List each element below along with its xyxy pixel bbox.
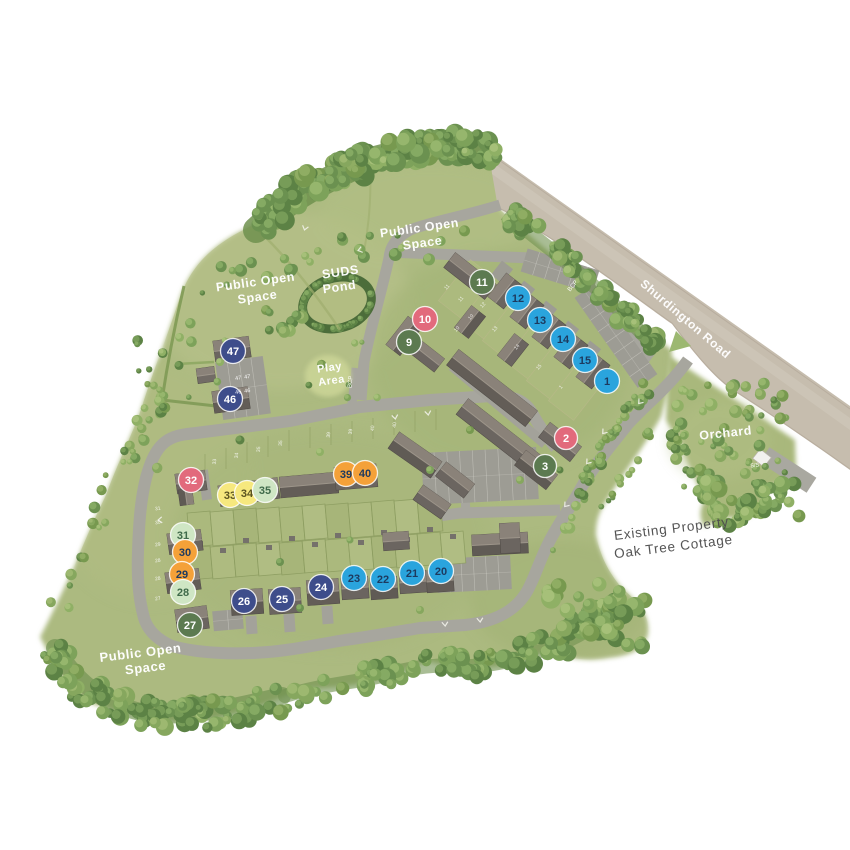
svg-text:20: 20: [435, 566, 447, 578]
svg-text:30: 30: [179, 547, 191, 559]
svg-text:35: 35: [256, 446, 262, 452]
svg-text:39: 39: [340, 469, 352, 481]
svg-text:34: 34: [234, 452, 240, 458]
svg-text:15: 15: [579, 355, 591, 367]
svg-text:2: 2: [563, 433, 569, 445]
svg-text:46: 46: [224, 394, 236, 406]
svg-text:32: 32: [185, 475, 197, 487]
svg-text:3: 3: [542, 461, 548, 473]
svg-text:S/S: S/S: [750, 462, 760, 469]
svg-text:39: 39: [348, 428, 354, 434]
svg-text:33: 33: [212, 458, 218, 464]
svg-text:29: 29: [155, 542, 162, 549]
svg-text:39: 39: [326, 432, 332, 438]
svg-text:30: 30: [155, 520, 162, 527]
svg-text:BCP: BCP: [347, 376, 354, 389]
svg-text:22: 22: [377, 574, 389, 586]
svg-text:25: 25: [276, 594, 288, 606]
svg-text:9: 9: [406, 337, 412, 349]
svg-text:27: 27: [155, 596, 162, 603]
svg-text:26: 26: [238, 596, 250, 608]
svg-text:47: 47: [227, 346, 239, 358]
svg-text:23: 23: [348, 573, 360, 585]
svg-text:31: 31: [155, 506, 162, 513]
svg-text:10: 10: [419, 314, 431, 326]
svg-text:1: 1: [604, 376, 610, 388]
svg-text:27: 27: [184, 620, 196, 632]
svg-text:21: 21: [406, 568, 418, 580]
svg-text:40: 40: [359, 468, 371, 480]
svg-text:28: 28: [155, 558, 162, 565]
svg-text:35: 35: [259, 485, 271, 497]
svg-text:40: 40: [392, 422, 398, 428]
svg-text:24: 24: [315, 582, 328, 594]
svg-text:28: 28: [177, 587, 189, 599]
svg-text:14: 14: [557, 334, 570, 346]
svg-text:12: 12: [512, 293, 524, 305]
svg-text:28: 28: [155, 576, 162, 583]
svg-text:35: 35: [278, 440, 284, 446]
svg-text:40: 40: [370, 425, 376, 431]
svg-text:13: 13: [534, 315, 546, 327]
svg-text:11: 11: [476, 277, 488, 289]
